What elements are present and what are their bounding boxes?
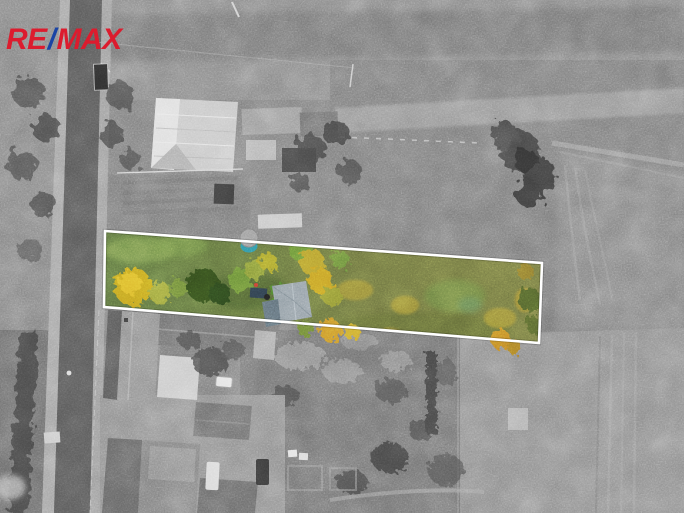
remax-logo-slash: / — [47, 23, 57, 56]
remax-logo-re: RE — [6, 23, 47, 56]
remax-logo-max: MAX — [57, 23, 122, 56]
aerial-photo-stage: RE/MAX — [0, 0, 684, 513]
aerial-photo — [0, 0, 684, 513]
remax-logo: RE/MAX — [6, 24, 122, 56]
